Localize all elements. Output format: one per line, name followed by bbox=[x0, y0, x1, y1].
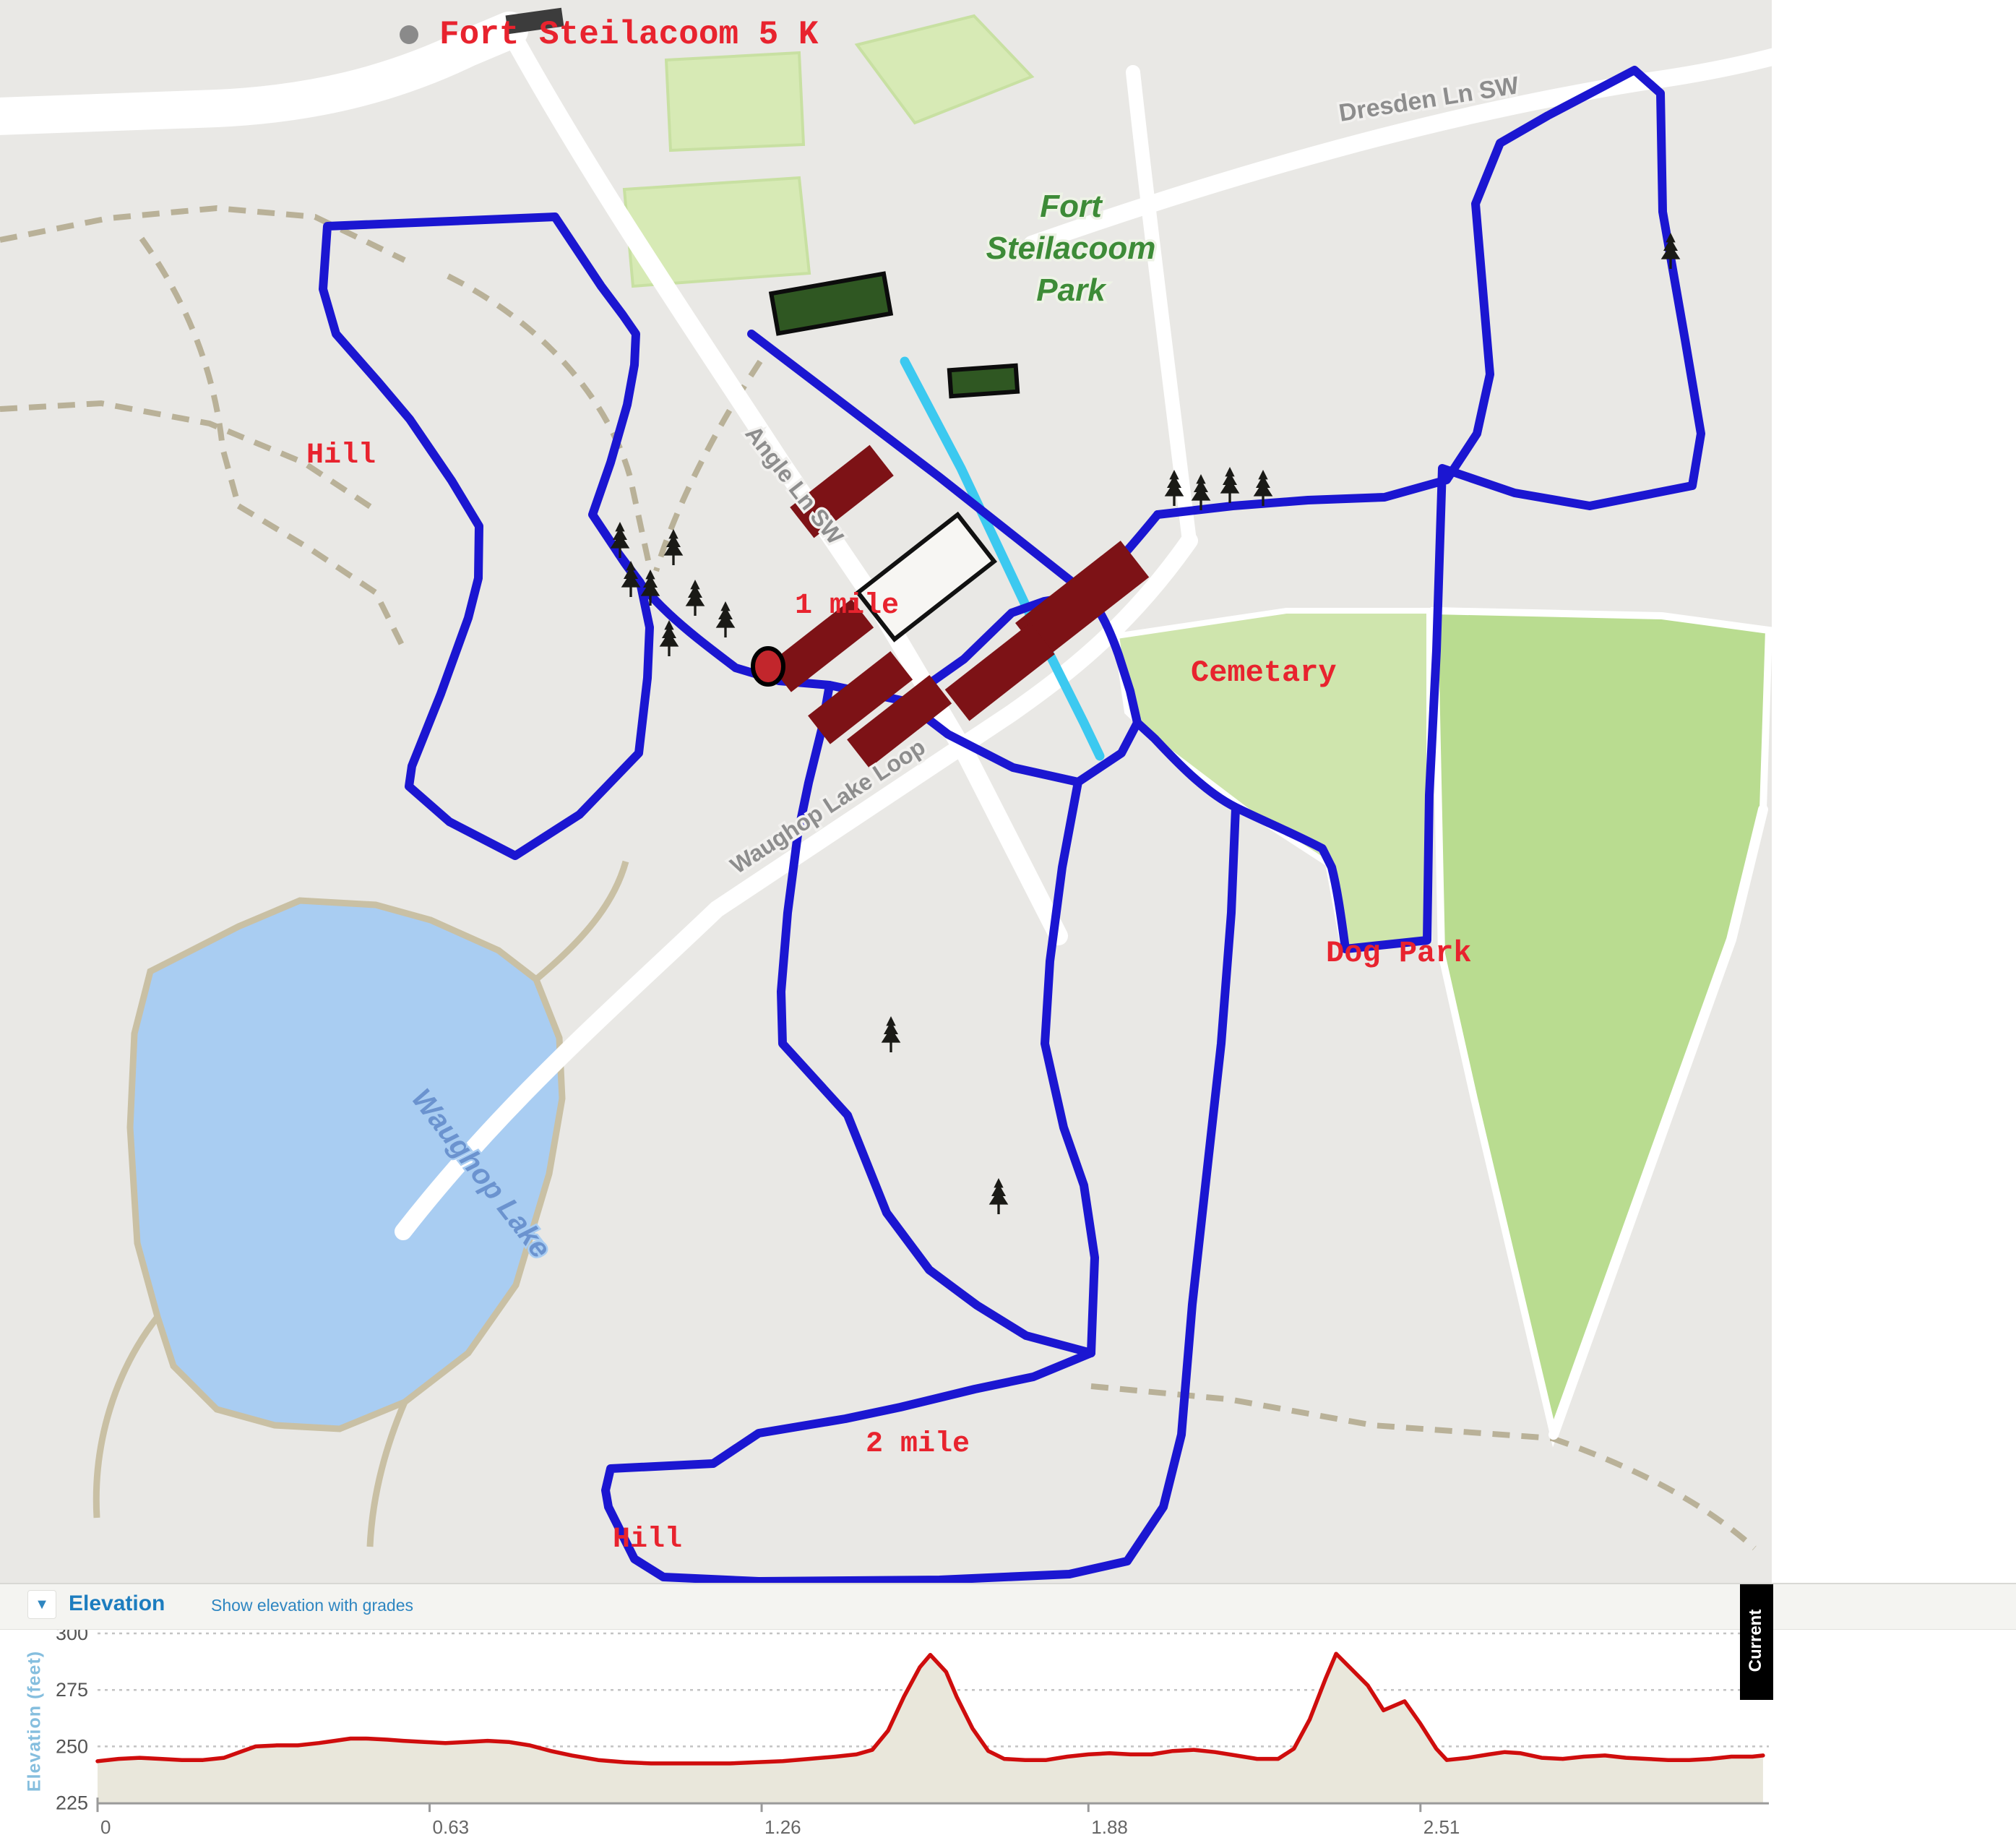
svg-text:1.26: 1.26 bbox=[764, 1816, 801, 1838]
elevation-y-axis-label: Elevation (feet) bbox=[25, 1642, 46, 1801]
svg-text:2.51: 2.51 bbox=[1423, 1816, 1460, 1838]
annotation-cemetery: Cemetary bbox=[1191, 656, 1337, 690]
park-label-line2: Steilacoom bbox=[986, 231, 1156, 266]
map-title: Fort Steilacoom 5 K bbox=[439, 16, 819, 53]
svg-text:275: 275 bbox=[56, 1679, 88, 1701]
annotation-hill-s: Hill bbox=[613, 1524, 682, 1556]
collapse-elevation-button[interactable]: ▼ bbox=[27, 1590, 56, 1619]
svg-text:0: 0 bbox=[100, 1816, 111, 1838]
svg-text:1.88: 1.88 bbox=[1091, 1816, 1128, 1838]
annotation-2-mile: 2 mile bbox=[866, 1428, 970, 1461]
page: Dresden Ln SW Angle Ln SW Waughop Lake L… bbox=[0, 0, 2016, 1843]
elevation-title: Elevation bbox=[69, 1591, 165, 1616]
start-marker bbox=[753, 648, 783, 684]
current-overlay-label: Current bbox=[1746, 1583, 1766, 1698]
top-gray-dot bbox=[400, 25, 418, 44]
svg-text:0.63: 0.63 bbox=[433, 1816, 470, 1838]
park-label-line3: Park bbox=[1036, 272, 1107, 308]
svg-text:250: 250 bbox=[56, 1735, 88, 1757]
annotation-dog-park: Dog Park bbox=[1326, 936, 1472, 971]
map-canvas[interactable]: Dresden Ln SW Angle Ln SW Waughop Lake L… bbox=[0, 0, 2016, 1583]
chevron-down-icon: ▼ bbox=[35, 1597, 49, 1612]
elevation-panel: 00.631.261.882.51300275250225 ▼ Elevatio… bbox=[0, 1583, 2016, 1843]
elevation-header: ▼ Elevation Show elevation with grades bbox=[0, 1584, 2016, 1630]
svg-text:225: 225 bbox=[56, 1792, 88, 1814]
annotation-1-mile: 1 mile bbox=[795, 590, 899, 622]
annotation-hill-nw: Hill bbox=[306, 439, 376, 472]
show-grades-link[interactable]: Show elevation with grades bbox=[211, 1596, 413, 1615]
current-overlay: Current bbox=[1740, 1584, 1773, 1700]
park-label-line1: Fort bbox=[1040, 189, 1103, 224]
